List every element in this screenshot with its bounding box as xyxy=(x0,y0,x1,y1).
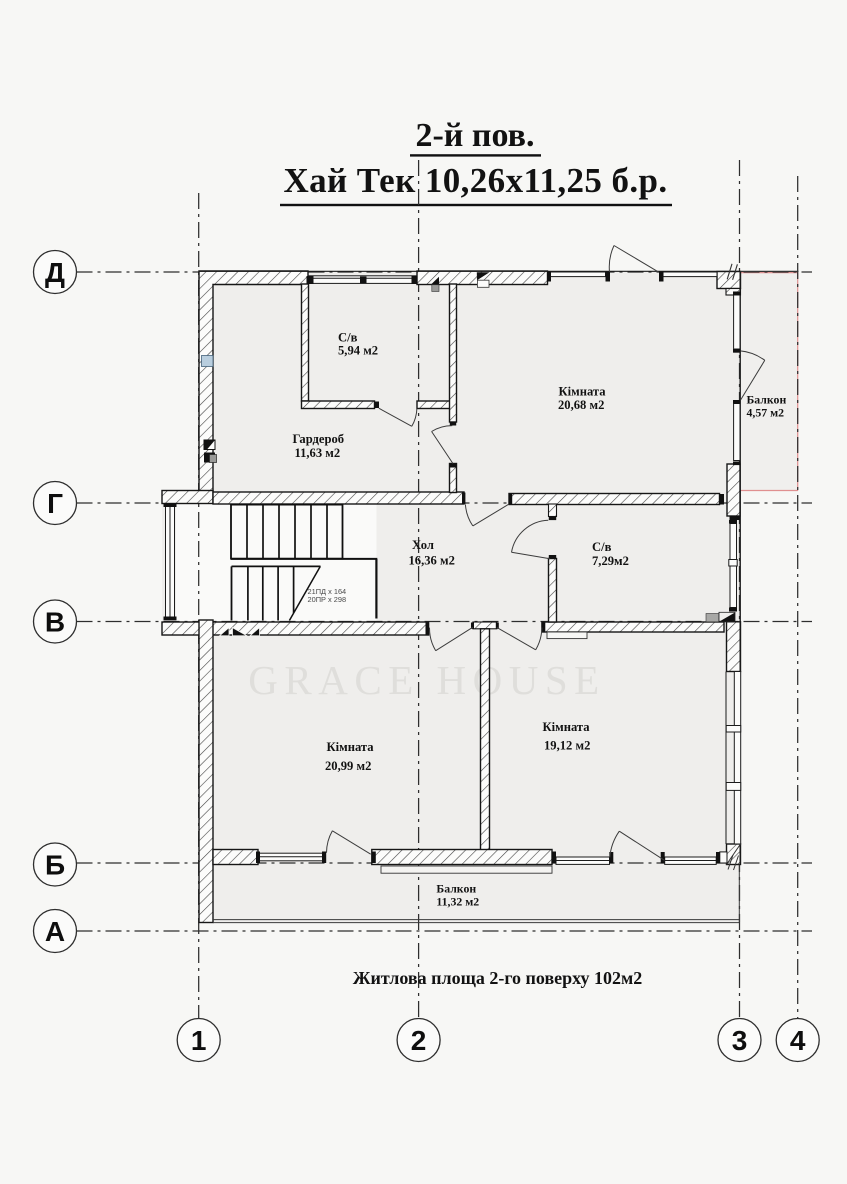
svg-text:Гардероб: Гардероб xyxy=(293,432,345,446)
svg-text:Хай Тек 10,26х11,25 б.р.: Хай Тек 10,26х11,25 б.р. xyxy=(283,161,667,200)
svg-text:Кімната: Кімната xyxy=(559,385,607,399)
svg-text:2-й пов.: 2-й пов. xyxy=(415,117,534,154)
svg-text:Д: Д xyxy=(45,257,65,288)
svg-text:Балкон: Балкон xyxy=(747,393,787,407)
svg-text:20,68 м2: 20,68 м2 xyxy=(558,398,604,412)
svg-text:Хол: Хол xyxy=(412,538,434,552)
svg-text:1: 1 xyxy=(191,1025,207,1056)
svg-text:11,63 м2: 11,63 м2 xyxy=(295,446,341,460)
svg-text:3: 3 xyxy=(732,1025,748,1056)
svg-text:Б: Б xyxy=(45,850,65,881)
svg-text:16,36 м2: 16,36 м2 xyxy=(409,554,455,568)
svg-text:4: 4 xyxy=(790,1025,806,1056)
svg-text:11,32 м2: 11,32 м2 xyxy=(436,895,479,909)
svg-text:2: 2 xyxy=(411,1025,427,1056)
svg-text:С/в: С/в xyxy=(338,331,358,345)
svg-text:Г: Г xyxy=(47,488,63,519)
svg-text:7,29м2: 7,29м2 xyxy=(592,554,629,568)
svg-text:GRACE HOUSE: GRACE HOUSE xyxy=(248,657,605,703)
svg-text:С/в: С/в xyxy=(592,540,612,554)
svg-text:20,99 м2: 20,99 м2 xyxy=(325,759,371,773)
svg-text:А: А xyxy=(45,916,65,947)
svg-text:4,57 м2: 4,57 м2 xyxy=(747,406,785,420)
svg-text:Житлова площа 2-го поверху 102: Житлова площа 2-го поверху 102м2 xyxy=(353,968,643,988)
svg-text:Кімната: Кімната xyxy=(543,720,591,734)
svg-text:5,94 м2: 5,94 м2 xyxy=(338,344,378,358)
svg-text:20ПР х 298: 20ПР х 298 xyxy=(308,595,347,604)
svg-text:Кімната: Кімната xyxy=(327,740,375,754)
svg-text:19,12 м2: 19,12 м2 xyxy=(544,739,590,753)
svg-text:Балкон: Балкон xyxy=(436,882,476,896)
svg-text:В: В xyxy=(45,607,65,638)
